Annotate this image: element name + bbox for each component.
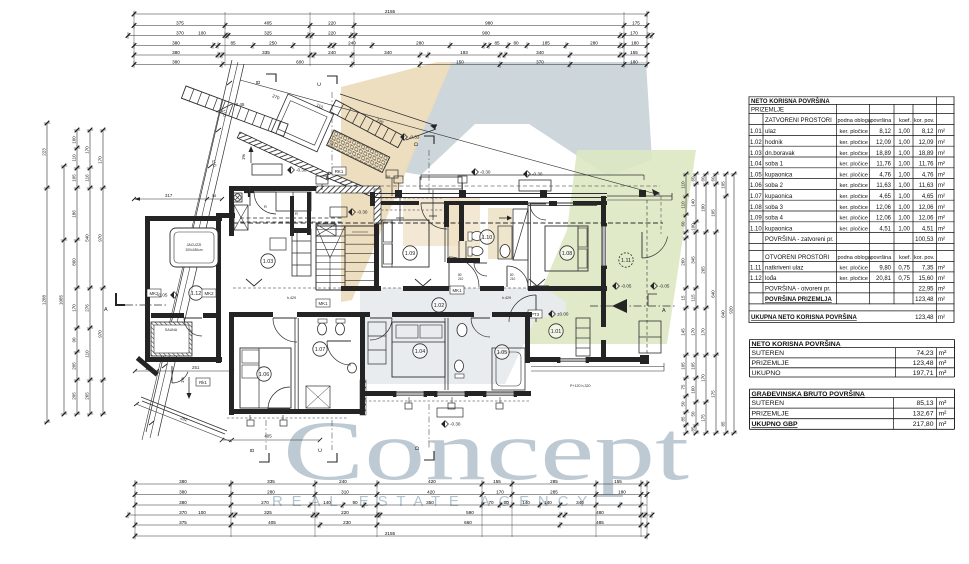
svg-text:123,48: 123,48	[915, 297, 934, 303]
svg-text:8,12: 8,12	[879, 129, 891, 135]
svg-text:230: 230	[343, 520, 351, 525]
svg-text:100,53: 100,53	[915, 237, 934, 243]
svg-text:70: 70	[488, 500, 494, 505]
svg-text:1.09: 1.09	[750, 216, 762, 222]
svg-text:123,48: 123,48	[915, 315, 934, 321]
svg-text:205: 205	[72, 392, 77, 400]
svg-text:-0.05: -0.05	[621, 284, 632, 289]
svg-text:D: D	[414, 142, 420, 146]
svg-text:-0.30: -0.30	[480, 170, 491, 175]
svg-text:ker. pločice: ker. pločice	[840, 276, 868, 282]
svg-text:11,76: 11,76	[919, 162, 934, 168]
svg-text:175: 175	[632, 20, 640, 25]
svg-text:PT3: PT3	[531, 312, 540, 317]
svg-text:380: 380	[179, 500, 187, 505]
svg-text:m²: m²	[938, 162, 945, 168]
svg-text:m²: m²	[939, 411, 948, 418]
svg-text:285: 285	[550, 479, 558, 484]
svg-text:405: 405	[268, 520, 276, 525]
svg-text:1,00: 1,00	[898, 129, 910, 135]
svg-text:370: 370	[176, 30, 184, 35]
svg-text:1.11: 1.11	[621, 258, 631, 264]
svg-text:1.07: 1.07	[750, 194, 762, 200]
svg-text:4,76: 4,76	[922, 172, 934, 178]
svg-text:m²: m²	[939, 370, 948, 377]
svg-text:180: 180	[631, 40, 639, 45]
svg-text:C: C	[318, 448, 324, 452]
svg-text:1.04: 1.04	[415, 349, 426, 355]
svg-text:280: 280	[590, 40, 598, 45]
svg-text:NETO KORISNA POVRŠINA: NETO KORISNA POVRŠINA	[751, 97, 830, 105]
svg-text:170: 170	[98, 156, 103, 164]
svg-text:podna obloga: podna obloga	[838, 118, 872, 124]
svg-text:1.05: 1.05	[750, 172, 762, 178]
svg-text:85: 85	[681, 416, 686, 422]
svg-text:100: 100	[701, 204, 706, 212]
svg-text:soba 3: soba 3	[765, 205, 784, 211]
svg-text:220: 220	[328, 20, 336, 25]
svg-text:m²: m²	[938, 297, 945, 303]
svg-text:UKUPNO: UKUPNO	[752, 370, 781, 377]
svg-text:C: C	[317, 82, 323, 86]
svg-text:900: 900	[482, 30, 490, 35]
svg-text:280: 280	[267, 489, 275, 494]
svg-text:345: 345	[691, 256, 696, 264]
svg-text:12,06: 12,06	[918, 216, 934, 222]
svg-text:485: 485	[596, 520, 604, 525]
svg-text:110: 110	[681, 201, 686, 209]
svg-text:250: 250	[269, 40, 277, 45]
svg-text:276: 276	[85, 304, 90, 312]
svg-text:1.08: 1.08	[750, 205, 762, 211]
svg-text:GRAĐEVINSKA BRUTO POVRŠINA: GRAĐEVINSKA BRUTO POVRŠINA	[752, 389, 865, 398]
svg-text:B: B	[256, 80, 262, 84]
svg-text:MK1: MK1	[318, 301, 328, 306]
svg-text:325: 325	[264, 30, 272, 35]
svg-text:140: 140	[522, 500, 530, 505]
svg-text:soba 4: soba 4	[765, 216, 784, 222]
svg-text:480: 480	[596, 510, 604, 515]
svg-text:PRIZEMLJE: PRIZEMLJE	[751, 108, 784, 114]
svg-text:R: R	[295, 211, 298, 216]
svg-text:170: 170	[701, 328, 706, 336]
svg-text:370: 370	[536, 59, 544, 64]
svg-text:105: 105	[711, 209, 716, 217]
svg-text:600: 600	[296, 59, 304, 64]
svg-text:140: 140	[323, 500, 331, 505]
svg-text:m²: m²	[938, 151, 945, 157]
svg-text:4,65: 4,65	[879, 194, 891, 200]
svg-text:75: 75	[681, 384, 686, 390]
svg-text:590: 590	[466, 510, 474, 515]
svg-text:1.10: 1.10	[750, 226, 762, 232]
svg-text:12,06: 12,06	[918, 205, 934, 211]
svg-text:dn.boravak: dn.boravak	[765, 151, 796, 157]
svg-text:180: 180	[630, 59, 638, 64]
svg-text:1.08: 1.08	[562, 251, 573, 257]
svg-text:660: 660	[464, 520, 472, 525]
svg-text:110: 110	[85, 350, 90, 358]
svg-text:m²: m²	[938, 315, 945, 321]
svg-text:1.07: 1.07	[315, 347, 326, 353]
svg-text:280: 280	[416, 40, 424, 45]
svg-text:-0.05: -0.05	[659, 284, 670, 289]
svg-text:1.10: 1.10	[482, 235, 493, 241]
svg-text:375: 375	[176, 20, 184, 25]
svg-text:ker. pločice: ker. pločice	[840, 216, 868, 222]
svg-text:m²: m²	[939, 360, 948, 367]
svg-text:1,00: 1,00	[898, 172, 910, 178]
svg-text:970: 970	[98, 330, 103, 338]
svg-text:170: 170	[691, 328, 696, 336]
svg-text:kupaonica: kupaonica	[765, 172, 793, 178]
svg-text:ker. pločice: ker. pločice	[840, 265, 868, 271]
svg-text:405: 405	[264, 20, 272, 25]
svg-text:1085: 1085	[59, 294, 64, 305]
svg-text:100: 100	[198, 30, 206, 35]
svg-text:11,63: 11,63	[919, 183, 934, 189]
svg-text:površina: površina	[871, 255, 893, 261]
svg-text:A: A	[104, 307, 108, 313]
svg-text:105: 105	[72, 174, 77, 182]
svg-text:980: 980	[485, 20, 493, 25]
svg-text:D: D	[415, 446, 421, 450]
svg-text:210: 210	[510, 277, 516, 281]
svg-text:ker. pločice: ker. pločice	[840, 183, 868, 189]
svg-text:m²: m²	[939, 421, 948, 428]
svg-text:m²: m²	[938, 172, 945, 178]
svg-text:kupaonica: kupaonica	[765, 194, 793, 200]
svg-text:335: 335	[262, 50, 270, 55]
svg-text:335: 335	[267, 479, 275, 484]
svg-text:m²: m²	[938, 194, 945, 200]
svg-text:1%: 1%	[241, 154, 246, 160]
svg-text:155: 155	[630, 50, 638, 55]
svg-text:110: 110	[681, 181, 686, 189]
svg-text:-0.30: -0.30	[532, 172, 543, 177]
svg-text:197,71: 197,71	[913, 370, 934, 377]
svg-text:m²: m²	[939, 400, 948, 407]
svg-text:220: 220	[328, 30, 336, 35]
svg-text:85: 85	[230, 40, 236, 45]
svg-text:12,09: 12,09	[876, 140, 892, 146]
svg-text:POVRŠINA - otvoreni pr.: POVRŠINA - otvoreni pr.	[765, 285, 831, 292]
svg-text:220: 220	[341, 510, 349, 515]
svg-text:površina: površina	[871, 118, 893, 124]
svg-text:m²: m²	[938, 226, 945, 232]
svg-text:270: 270	[261, 500, 269, 505]
svg-text:POVRŠINA PRIZEMLJA: POVRŠINA PRIZEMLJA	[765, 295, 832, 303]
svg-text:R: R	[264, 204, 267, 209]
svg-text:210: 210	[458, 277, 464, 281]
svg-text:20,81: 20,81	[876, 276, 892, 282]
svg-text:h.429: h.429	[502, 296, 511, 300]
svg-text:MK1: MK1	[452, 288, 462, 293]
svg-text:UKUPNA NETO KORISNA POVRŠINA: UKUPNA NETO KORISNA POVRŠINA	[751, 313, 857, 321]
svg-text:soba 1: soba 1	[765, 162, 784, 168]
svg-text:74,23: 74,23	[916, 350, 933, 357]
svg-text:1.12: 1.12	[750, 276, 762, 282]
svg-text:ZATVORENI PROSTORI: ZATVORENI PROSTORI	[765, 118, 832, 124]
svg-text:185: 185	[542, 40, 550, 45]
svg-text:1,00: 1,00	[898, 226, 910, 232]
svg-text:240: 240	[348, 40, 356, 45]
svg-text:1288: 1288	[42, 294, 47, 305]
svg-text:ker. pločice: ker. pločice	[840, 205, 868, 211]
svg-text:1.02: 1.02	[434, 303, 445, 309]
svg-text:ker. pločice: ker. pločice	[840, 226, 868, 232]
svg-text:SUTEREN: SUTEREN	[752, 350, 785, 357]
svg-text:-0.05: -0.05	[157, 293, 168, 298]
svg-text:132,67: 132,67	[913, 411, 934, 418]
svg-text:380: 380	[179, 489, 187, 494]
svg-text:970: 970	[98, 234, 103, 242]
svg-text:420: 420	[428, 479, 436, 484]
svg-text:1.01: 1.01	[551, 329, 562, 335]
svg-text:1,00: 1,00	[898, 151, 910, 157]
svg-text:175: 175	[711, 390, 716, 398]
svg-text:soba 2: soba 2	[765, 183, 784, 189]
svg-text:1.06: 1.06	[259, 372, 270, 378]
svg-text:m²: m²	[938, 237, 945, 243]
svg-text:natkriveni ulaz: natkriveni ulaz	[765, 265, 803, 271]
svg-text:180: 180	[618, 489, 626, 494]
svg-text:217,80: 217,80	[913, 421, 934, 428]
svg-text:205: 205	[72, 362, 77, 370]
svg-text:145: 145	[681, 328, 686, 336]
svg-text:540: 540	[85, 234, 90, 242]
svg-text:265: 265	[701, 266, 706, 274]
svg-text:240: 240	[339, 479, 347, 484]
svg-text:1,00: 1,00	[898, 205, 910, 211]
svg-text:1.06: 1.06	[750, 183, 762, 189]
svg-text:A: A	[662, 308, 666, 314]
svg-text:kor. pov.: kor. pov.	[914, 118, 935, 124]
svg-text:-0.30: -0.30	[450, 422, 461, 427]
svg-text:380: 380	[172, 40, 180, 45]
svg-text:PRIZEMLJE: PRIZEMLJE	[752, 360, 790, 367]
svg-text:350: 350	[426, 500, 434, 505]
svg-text:193: 193	[460, 50, 468, 55]
svg-text:9,80: 9,80	[879, 265, 891, 271]
svg-text:koef.: koef.	[899, 255, 911, 261]
svg-text:317: 317	[165, 193, 173, 198]
svg-text:60: 60	[691, 176, 696, 182]
svg-text:kor. pov.: kor. pov.	[914, 255, 935, 261]
svg-text:1,00: 1,00	[898, 183, 910, 189]
svg-text:0,75: 0,75	[898, 276, 910, 282]
svg-text:ker. pločice: ker. pločice	[840, 172, 868, 178]
svg-text:186: 186	[72, 210, 77, 218]
svg-text:ker. pločice: ker. pločice	[840, 162, 868, 168]
svg-text:116: 116	[85, 174, 90, 182]
svg-text:140: 140	[544, 500, 552, 505]
svg-text:1.12: 1.12	[191, 291, 202, 297]
svg-text:85: 85	[494, 40, 500, 45]
svg-text:340: 340	[576, 500, 584, 505]
svg-text:Rk1: Rk1	[199, 380, 207, 385]
svg-text:105: 105	[681, 362, 686, 370]
svg-text:m²: m²	[938, 265, 945, 271]
svg-text:ker. pločice: ker. pločice	[840, 140, 868, 146]
svg-text:RK1: RK1	[335, 169, 344, 174]
svg-text:m²: m²	[938, 140, 945, 146]
svg-text:11,63: 11,63	[876, 183, 891, 189]
svg-text:SUTEREN: SUTEREN	[752, 400, 785, 407]
svg-text:380: 380	[172, 50, 180, 55]
svg-text:170: 170	[72, 304, 77, 312]
svg-text:160: 160	[691, 386, 696, 394]
svg-text:60: 60	[701, 176, 706, 182]
svg-text:18,89: 18,89	[918, 151, 934, 157]
svg-text:1.02: 1.02	[750, 140, 762, 146]
svg-text:60: 60	[681, 221, 686, 227]
svg-text:4,76: 4,76	[879, 172, 891, 178]
svg-text:±0.00: ±0.00	[557, 312, 569, 317]
svg-text:420: 420	[427, 489, 435, 494]
svg-text:155: 155	[493, 479, 501, 484]
svg-text:B: B	[250, 448, 256, 452]
svg-text:OTVORENI PROSTORI: OTVORENI PROSTORI	[765, 255, 830, 261]
svg-text:2155: 2155	[385, 531, 396, 536]
svg-text:4,51: 4,51	[879, 226, 891, 232]
svg-text:ker. pločice: ker. pločice	[840, 194, 868, 200]
svg-text:325: 325	[264, 510, 272, 515]
svg-text:2155: 2155	[385, 9, 396, 14]
svg-text:POVRŠINA - zatvoreni pr.: POVRŠINA - zatvoreni pr.	[765, 236, 834, 243]
svg-text:1.11: 1.11	[750, 265, 762, 271]
svg-text:110: 110	[72, 154, 77, 162]
svg-text:640: 640	[711, 290, 716, 298]
svg-text:P+120 h.320: P+120 h.320	[570, 384, 590, 388]
svg-text:59: 59	[386, 175, 390, 179]
svg-text:90: 90	[352, 500, 358, 505]
svg-text:380: 380	[172, 59, 180, 64]
svg-text:0,75: 0,75	[898, 265, 910, 271]
svg-text:m²: m²	[938, 276, 945, 282]
svg-text:100: 100	[691, 223, 696, 231]
svg-text:podna obloga: podna obloga	[838, 255, 872, 261]
svg-text:134: 134	[145, 366, 153, 371]
svg-text:ker. pločice: ker. pločice	[840, 151, 868, 157]
svg-text:85: 85	[691, 426, 696, 432]
svg-text:200x180cm: 200x180cm	[185, 248, 202, 252]
svg-text:7,35: 7,35	[922, 265, 934, 271]
svg-text:12,09: 12,09	[918, 140, 934, 146]
svg-text:1.03: 1.03	[263, 259, 274, 265]
svg-text:JACUZZI: JACUZZI	[187, 243, 202, 247]
svg-text:240: 240	[328, 50, 336, 55]
svg-text:12,06: 12,06	[876, 205, 892, 211]
svg-text:4,51: 4,51	[922, 226, 934, 232]
svg-text:18,89: 18,89	[876, 151, 892, 157]
svg-text:251: 251	[192, 365, 200, 370]
svg-text:4,65: 4,65	[922, 194, 934, 200]
svg-text:1.03: 1.03	[750, 151, 762, 157]
svg-text:155: 155	[614, 479, 622, 484]
svg-text:58: 58	[212, 194, 216, 198]
svg-text:-3.45: -3.45	[234, 102, 245, 107]
svg-text:1.05: 1.05	[497, 350, 508, 356]
svg-text:123,48: 123,48	[913, 360, 934, 367]
svg-text:m²: m²	[938, 183, 945, 189]
svg-text:170: 170	[630, 30, 638, 35]
svg-text:160: 160	[72, 136, 77, 144]
svg-text:85,13: 85,13	[916, 400, 933, 407]
svg-text:m²: m²	[938, 286, 945, 292]
svg-text:1,00: 1,00	[898, 162, 910, 168]
svg-text:22,95: 22,95	[918, 286, 934, 292]
svg-text:1.01: 1.01	[750, 129, 762, 135]
svg-text:640: 640	[721, 310, 726, 318]
svg-text:140: 140	[691, 199, 696, 207]
svg-text:60: 60	[711, 176, 716, 182]
svg-text:m²: m²	[939, 350, 948, 357]
svg-text:405: 405	[264, 434, 272, 439]
svg-text:1,00: 1,00	[898, 216, 910, 222]
svg-text:105: 105	[721, 181, 726, 189]
svg-text:1.04: 1.04	[750, 162, 762, 168]
svg-text:90: 90	[72, 337, 77, 343]
svg-text:ulaz: ulaz	[765, 129, 776, 135]
svg-text:340: 340	[536, 50, 544, 55]
svg-text:85: 85	[721, 421, 726, 427]
svg-text:80: 80	[513, 40, 519, 45]
svg-text:375: 375	[179, 520, 187, 525]
svg-text:285: 285	[550, 489, 558, 494]
svg-text:100: 100	[198, 510, 206, 515]
svg-text:m²: m²	[938, 216, 945, 222]
svg-text:-0.30: -0.30	[296, 168, 307, 173]
svg-text:1%: 1%	[180, 377, 185, 383]
svg-text:265: 265	[85, 392, 90, 400]
svg-text:170: 170	[701, 374, 706, 382]
svg-text:11,76: 11,76	[876, 162, 891, 168]
svg-text:115: 115	[691, 294, 696, 302]
svg-text:8,12: 8,12	[922, 129, 934, 135]
svg-text:170: 170	[85, 146, 90, 154]
svg-text:340: 340	[384, 50, 392, 55]
svg-text:ker. pločice: ker. pločice	[840, 129, 868, 135]
svg-text:-0.30: -0.30	[357, 210, 368, 215]
svg-text:lođa: lođa	[765, 276, 777, 282]
svg-text:50: 50	[681, 401, 686, 407]
svg-text:koef.: koef.	[899, 118, 911, 124]
svg-text:kupaonica: kupaonica	[765, 226, 793, 232]
svg-text:15: 15	[681, 295, 686, 301]
svg-text:105: 105	[691, 362, 696, 370]
svg-text:260: 260	[681, 258, 686, 266]
svg-text:370: 370	[179, 510, 187, 515]
svg-text:UKUPNO GBP: UKUPNO GBP	[752, 421, 799, 428]
svg-text:150: 150	[456, 59, 464, 64]
svg-text:PRIZEMLJE: PRIZEMLJE	[752, 411, 790, 418]
svg-text:15,60: 15,60	[918, 276, 934, 282]
svg-text:920: 920	[729, 306, 734, 314]
svg-text:223: 223	[42, 148, 47, 156]
svg-text:50: 50	[691, 411, 696, 417]
svg-text:m²: m²	[938, 205, 945, 211]
svg-text:380: 380	[179, 479, 187, 484]
svg-text:-0.33: -0.33	[409, 135, 420, 140]
svg-text:h.429: h.429	[287, 296, 296, 300]
svg-text:SAUNA: SAUNA	[165, 328, 178, 332]
svg-text:hodnik: hodnik	[765, 140, 784, 146]
svg-text:310: 310	[341, 489, 349, 494]
svg-text:50: 50	[503, 500, 509, 505]
svg-text:860: 860	[72, 258, 77, 266]
svg-text:1.09: 1.09	[405, 251, 416, 257]
